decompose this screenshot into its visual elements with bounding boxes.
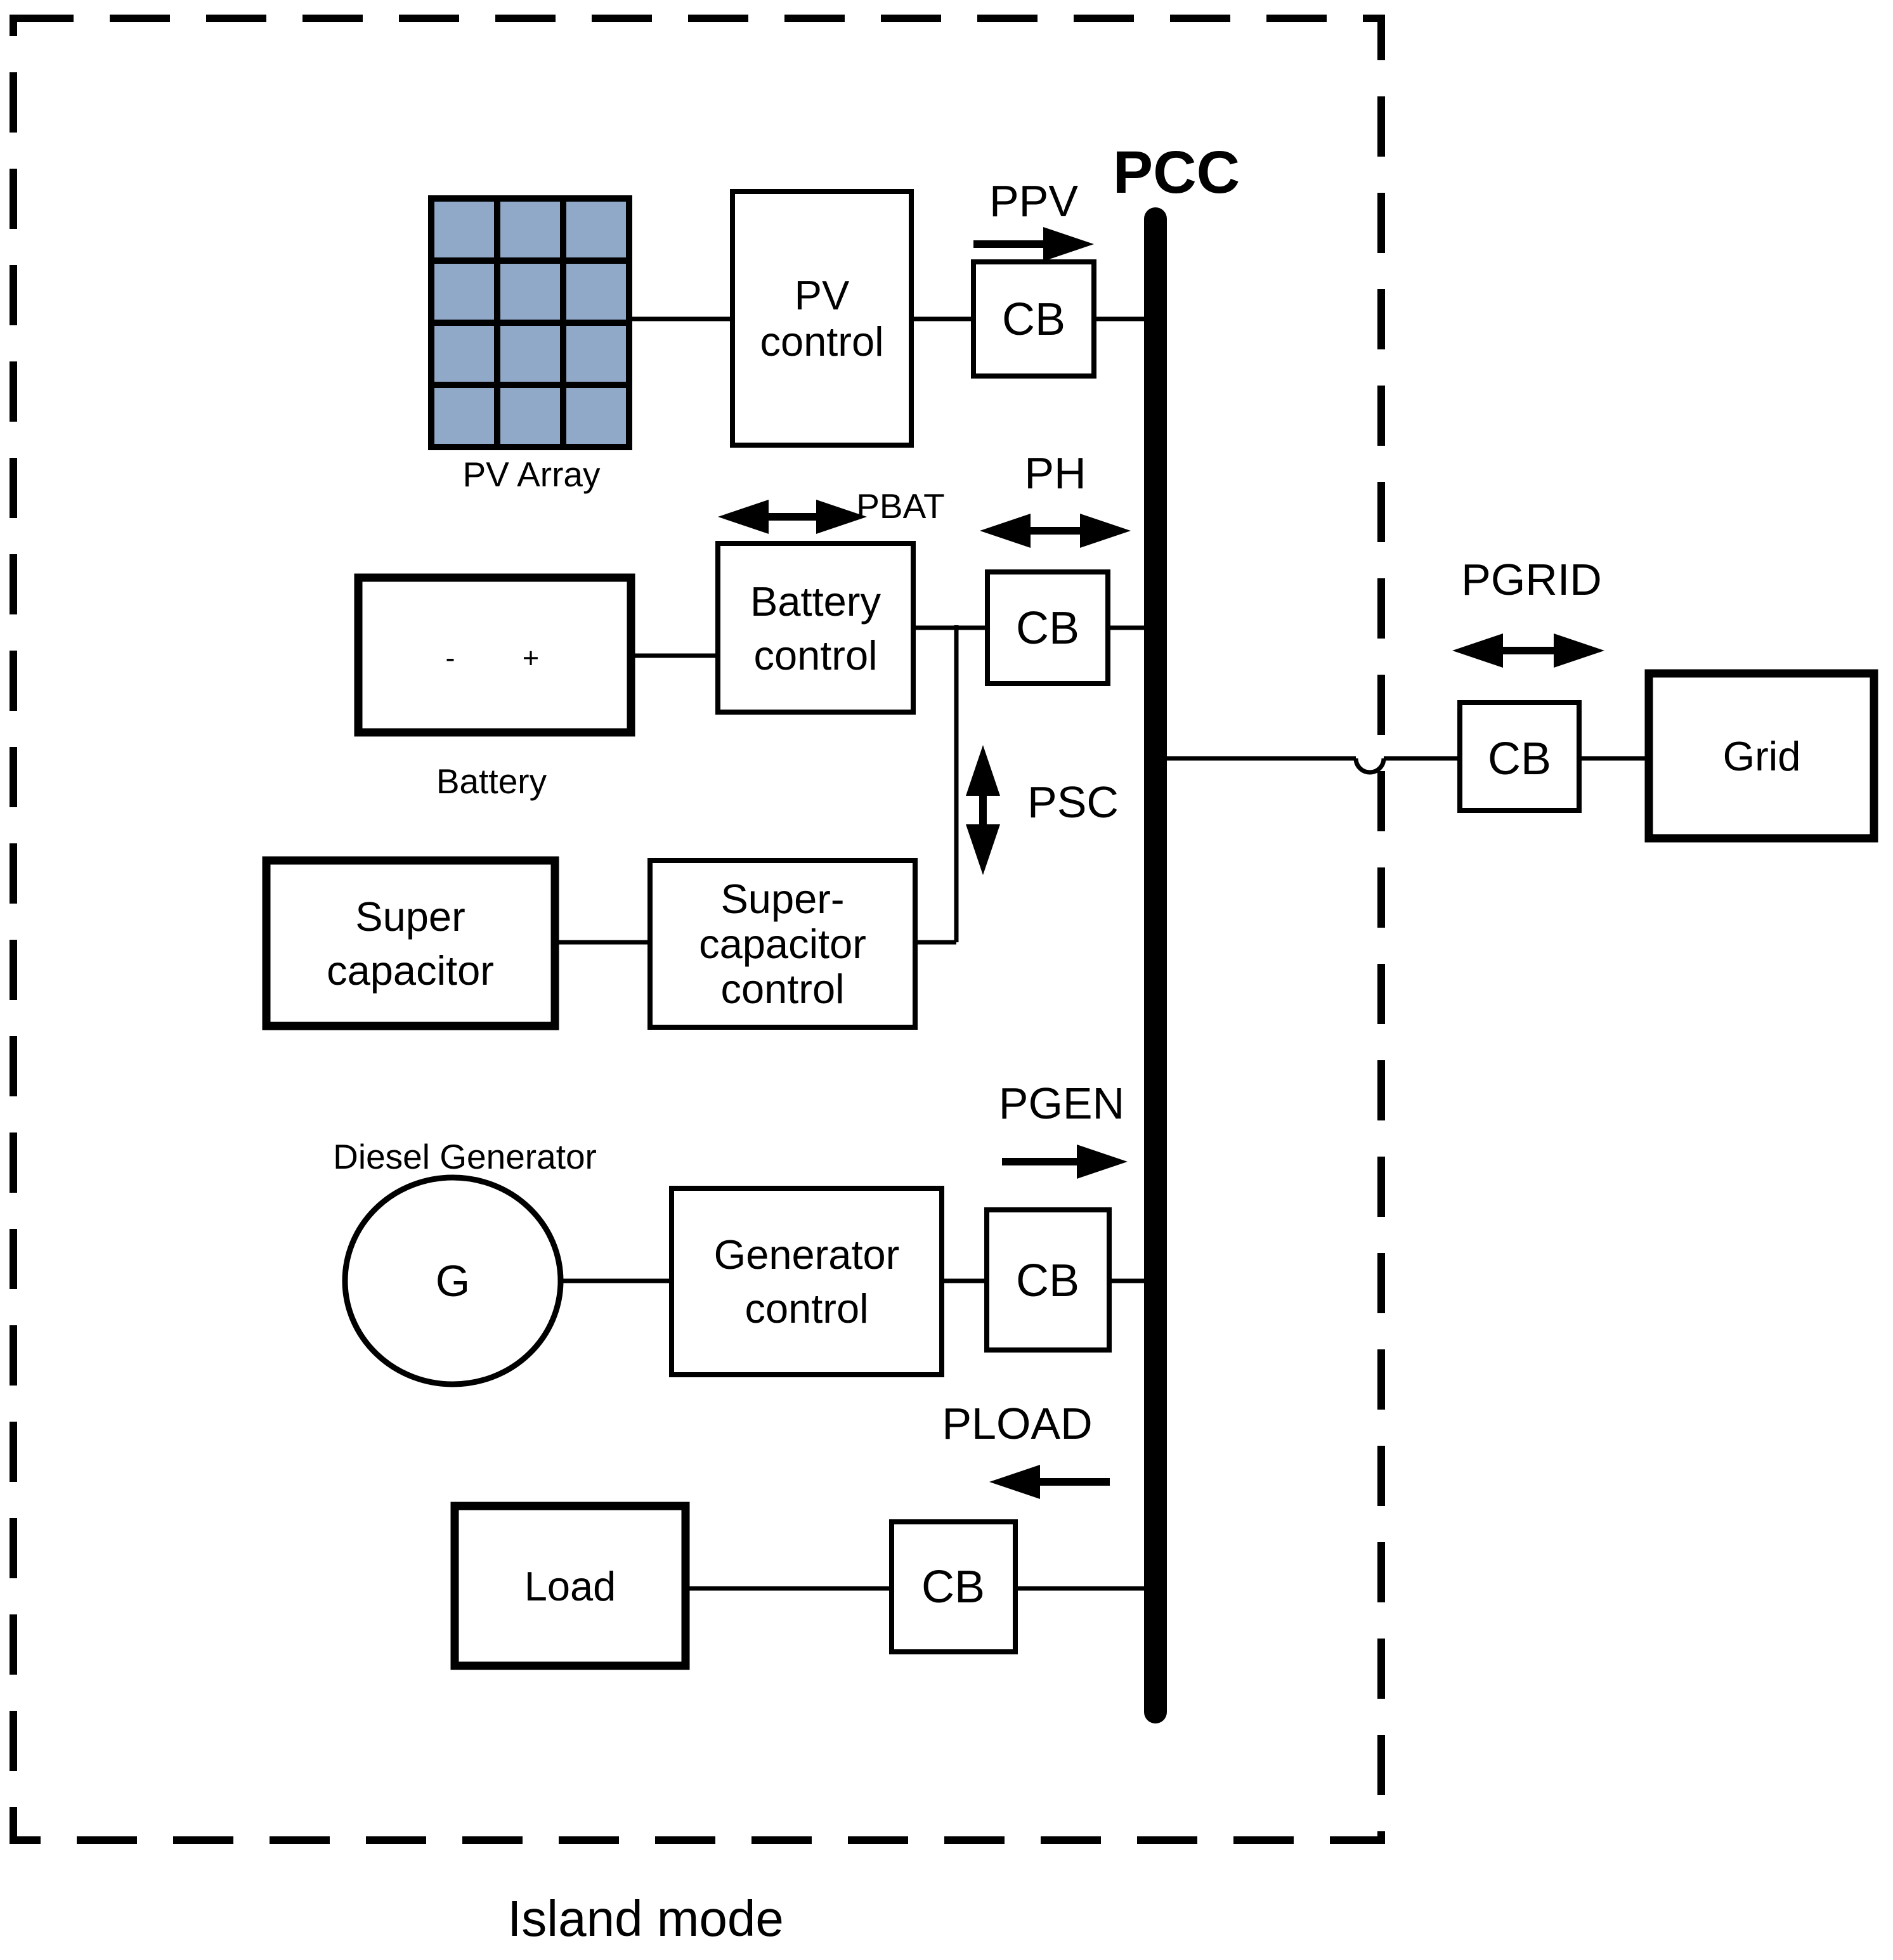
pgen-arrow-shaft	[1002, 1158, 1081, 1165]
psc-flow: PSC	[966, 745, 1119, 875]
battery-minus-terminal: -	[446, 642, 455, 674]
pv-control-label-line2: control	[760, 318, 883, 365]
load-branch: Load CB PLOAD	[455, 1399, 1148, 1666]
generator-control-box: Generator control	[672, 1188, 942, 1375]
load-box: Load	[455, 1506, 686, 1666]
supercap-control-label-line1: Super-	[720, 876, 844, 922]
generator-circuit-breaker: CB	[987, 1210, 1109, 1350]
ph-left-arrow-icon	[980, 514, 1031, 548]
ppv-flow: PPV	[973, 176, 1094, 261]
pbat-arrow-shaft	[764, 513, 821, 521]
battery-control-rect	[718, 543, 913, 712]
pload-flow: PLOAD	[942, 1399, 1110, 1499]
supercap-control-label-line3: control	[720, 966, 844, 1012]
supercapacitor-control-box: Super- capacitor control	[650, 860, 915, 1027]
pload-arrow-shaft	[1037, 1478, 1110, 1486]
grid-branch: CB Grid PGRID	[1164, 555, 1874, 838]
supercapacitor-rect	[266, 860, 555, 1026]
battery-branch: - + Battery Battery control CB PBAT PH	[358, 448, 1148, 801]
pv-circuit-breaker: CB	[973, 262, 1094, 376]
generator-branch: Diesel Generator G Generator control CB …	[333, 1079, 1148, 1384]
pgrid-flow: PGRID	[1452, 555, 1604, 668]
pgrid-arrow-shaft	[1500, 647, 1557, 654]
ph-arrow-shaft	[1027, 527, 1083, 535]
pload-left-arrow-icon	[989, 1465, 1040, 1499]
pgen-label: PGEN	[999, 1079, 1124, 1128]
battery-control-box: Battery control	[718, 543, 913, 712]
pbat-left-arrow-icon	[718, 500, 769, 534]
pv-array-label: PV Array	[462, 455, 601, 494]
generator-control-label-line2: control	[745, 1285, 868, 1332]
battery-circuit-breaker: CB	[987, 572, 1108, 684]
pbat-flow: PBAT	[718, 486, 945, 534]
pgen-right-arrow-icon	[1077, 1145, 1128, 1179]
ppv-right-arrow-icon	[1043, 227, 1094, 261]
psc-arrow-shaft	[979, 793, 987, 827]
generator-control-rect	[672, 1188, 942, 1375]
island-mode-caption: Island mode	[507, 1890, 784, 1947]
pv-array: PV Array	[431, 198, 629, 494]
grid-cb-label: CB	[1488, 734, 1551, 784]
diesel-generator: Diesel Generator G	[333, 1137, 597, 1384]
pcc-bus: PCC	[1113, 139, 1240, 1712]
diagram-canvas: PCC PV Array PV control CB PPV	[0, 0, 1893, 1957]
psc-up-arrow-icon	[966, 745, 1000, 796]
battery-control-label-line2: control	[753, 632, 877, 678]
pbat-label: PBAT	[856, 486, 945, 526]
battery-control-label-line1: Battery	[750, 578, 881, 625]
ph-right-arrow-icon	[1080, 514, 1131, 548]
pgrid-left-arrow-icon	[1452, 633, 1503, 668]
battery-rect	[358, 578, 631, 732]
microgrid-diagram: PCC PV Array PV control CB PPV	[0, 0, 1893, 1957]
battery-label: Battery	[436, 762, 547, 801]
pv-branch: PV Array PV control CB PPV	[431, 176, 1148, 494]
wire-boundary-crossover-hop	[1356, 758, 1384, 772]
grid-circuit-breaker: CB	[1460, 703, 1579, 810]
ph-flow: PH	[980, 448, 1131, 548]
psc-down-arrow-icon	[966, 824, 1000, 875]
pv-cb-label: CB	[1002, 294, 1065, 345]
generator-control-label-line1: Generator	[714, 1231, 900, 1278]
pgen-flow: PGEN	[999, 1079, 1128, 1179]
pv-control-label-line1: PV	[795, 272, 850, 318]
ppv-arrow-shaft	[973, 240, 1048, 248]
generator-symbol: G	[436, 1256, 470, 1306]
battery-cb-label: CB	[1016, 603, 1079, 654]
diesel-generator-label: Diesel Generator	[333, 1137, 597, 1176]
pload-label: PLOAD	[942, 1399, 1092, 1448]
pv-control-box: PV control	[732, 191, 911, 445]
generator-cb-label: CB	[1016, 1256, 1079, 1306]
load-label: Load	[524, 1563, 616, 1609]
battery-box: - + Battery	[358, 578, 631, 801]
grid-box: Grid	[1649, 673, 1874, 838]
pcc-label: PCC	[1113, 139, 1240, 206]
supercapacitor-label-line2: capacitor	[327, 947, 494, 994]
psc-label: PSC	[1027, 777, 1119, 827]
supercapacitor-label-line1: Super	[355, 893, 465, 940]
ppv-label: PPV	[989, 176, 1078, 226]
battery-plus-terminal: +	[523, 642, 539, 674]
supercap-control-label-line2: capacitor	[699, 921, 866, 967]
load-circuit-breaker: CB	[892, 1522, 1015, 1652]
pgrid-right-arrow-icon	[1554, 633, 1604, 668]
ph-label: PH	[1024, 448, 1086, 498]
grid-label: Grid	[1723, 733, 1801, 779]
pgrid-label: PGRID	[1461, 555, 1602, 604]
supercapacitor-box: Super capacitor	[266, 860, 555, 1026]
load-cb-label: CB	[921, 1562, 985, 1613]
